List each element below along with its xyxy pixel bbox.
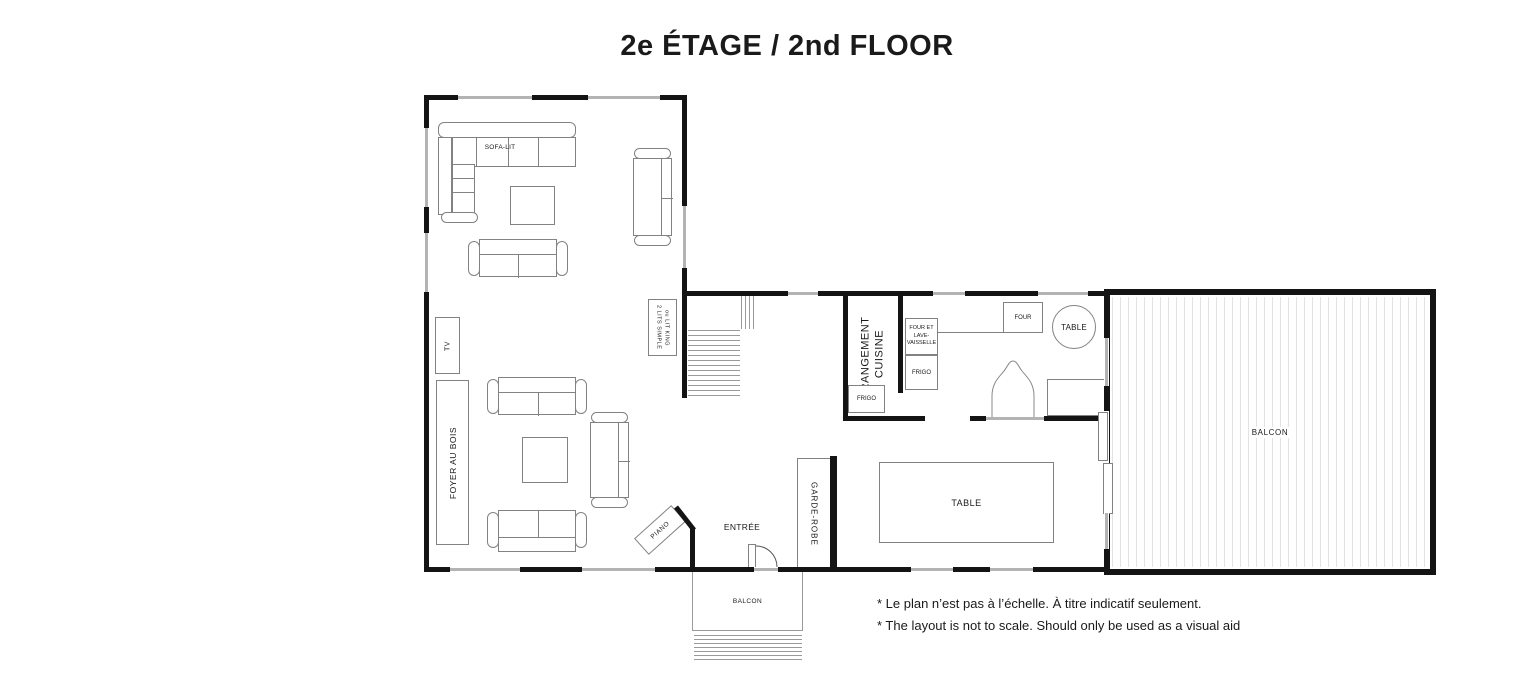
door-swing-arc [756,546,777,567]
balcony-bottom: BALCON [692,572,803,631]
wall [898,293,903,393]
window [450,567,520,572]
fridge-small: FRIGO [848,385,885,413]
patio-door-panel [1103,463,1113,514]
window [990,567,1033,572]
oven: FOUR [1003,302,1043,333]
sofa2-divider [538,392,539,416]
oven-dishwasher-line1: FOUR ET [909,325,933,332]
sofa3-divider [618,461,630,462]
page-title: 2e ÉTAGE / 2nd FLOOR [620,30,953,63]
closet-wall [830,456,837,572]
sofa4-backline [499,537,575,538]
window [682,206,687,268]
kitchen-counter-line [938,332,1003,333]
sofa3-cap-bottom [591,497,628,508]
stairs-treads [688,330,740,398]
fridge: FRIGO [905,355,938,390]
sofa-seat-divider [538,138,539,166]
tv-label: TV [444,341,451,351]
stairs-winders [741,296,757,329]
piano: PIANO [634,505,686,555]
sofa-seat-divider [453,178,474,179]
kitchen-storage-line2: CUISINE [873,317,887,392]
coffee-table-upper [510,186,555,225]
kitchen-bench [1047,379,1108,416]
sectional-sofa-back [438,122,576,138]
exterior-stairs [694,635,802,662]
patio-door-panel [1098,412,1108,461]
kitchen-storage-line1: RANGEMENT [859,317,873,392]
fridge-small-label: FRIGO [857,396,876,402]
closet-label: GARDE-ROBE [810,482,819,546]
dining-table-label: TABLE [951,498,981,508]
kitchen-round-table: TABLE [1052,305,1096,349]
dining-table: TABLE [879,462,1054,543]
door-opening [754,567,778,572]
footnote-english: * The layout is not to scale. Should onl… [877,618,1240,633]
loveseat-divider [518,254,519,278]
window [424,233,429,292]
oven-dishwasher-line3: VAISSELLE [907,340,936,347]
floor-plan: 2e ÉTAGE / 2nd FLOOR BALCON BALCON SOFA-… [0,0,1536,673]
piano-label: PIANO [649,520,671,540]
window [1038,291,1088,296]
sectional-sofa-chaise [452,164,475,214]
window [986,416,1044,421]
fireplace-label: FOYER AU BOIS [448,426,458,498]
coffee-table-lower [522,437,568,483]
loveseat-backline [480,254,556,255]
window [588,95,660,100]
sofa3-backline [618,423,619,497]
wall [845,416,925,421]
oven-label: FOUR [1015,315,1032,321]
sofa-vertical-cap-bottom [634,235,671,246]
window [788,291,818,296]
sofa-vertical-backline [661,159,662,235]
wall [690,528,695,569]
fridge-label: FRIGO [912,370,931,376]
window [582,567,655,572]
beds-note-line1: 2 LITS SIMPLE [656,305,662,349]
oven-dishwasher-line2: LAVE- [914,333,930,340]
beds-note-line2: ou LIT KING [664,310,670,346]
balcony-right-label-wrap: BALCON [1110,295,1430,569]
balcony-right-label: BALCON [1249,427,1292,438]
sofa-bed-label: SOFA-LIT [470,140,530,154]
sofa3-body [590,422,629,498]
sofa4-divider [538,511,539,537]
sofa-seat-divider [453,192,474,193]
balcony-right: BALCON [1104,289,1436,575]
closet: GARDE-ROBE [797,458,831,570]
sofa4-body [498,510,576,552]
footnote-french: * Le plan n’est pas à l’échelle. À titre… [877,596,1201,611]
sofa-vertical-body [633,158,672,236]
sofa2-arm-right [575,379,587,414]
entry-label: ENTRÉE [712,520,772,533]
window [1104,513,1109,549]
kitchen-storage-label: RANGEMENT CUISINE [859,317,888,392]
kitchen-round-table-label: TABLE [1061,323,1087,332]
beds-note-box: 2 LITS SIMPLE ou LIT KING [648,299,677,356]
kitchen-chair-outline [992,361,1034,417]
window [933,291,965,296]
sectional-sofa-arm-left [438,137,452,215]
sofa2-body [498,377,576,415]
window [458,95,532,100]
oven-dishwasher: FOUR ET LAVE- VAISSELLE [905,318,938,355]
window [911,567,953,572]
wall [843,293,848,421]
window [424,128,429,207]
loveseat-body [479,239,557,277]
window [1104,338,1109,386]
balcony-bottom-label: BALCON [733,598,762,605]
sofa-vertical-divider [661,198,673,199]
tv-cabinet: TV [435,317,460,374]
fireplace: FOYER AU BOIS [436,380,469,545]
sectional-sofa-end-cap [441,212,478,223]
loveseat-arm-right [556,241,568,276]
sofa2-backline [499,392,575,393]
sofa4-arm-right [575,512,587,548]
